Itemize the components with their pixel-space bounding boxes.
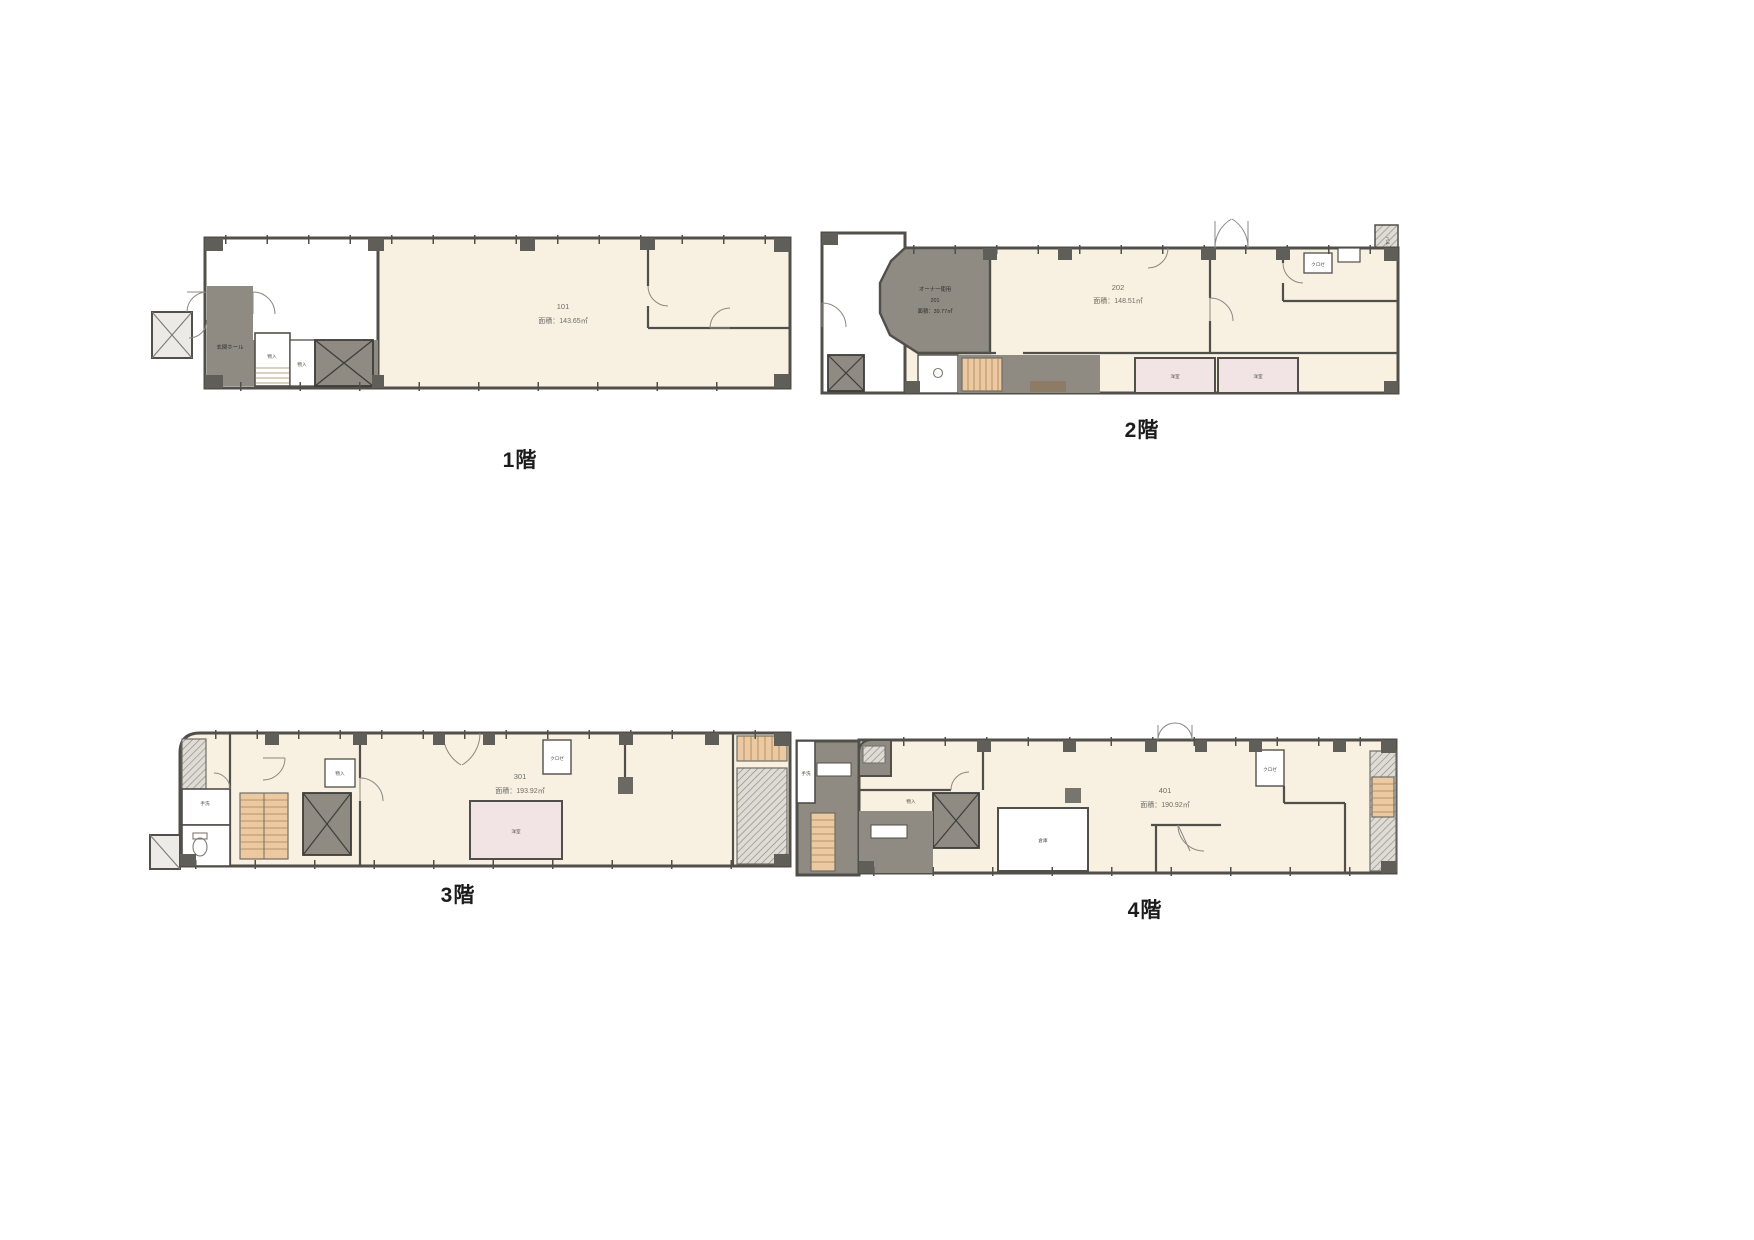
floor-plan-4f: 手洗 物入 <box>793 713 1408 878</box>
right-strip <box>1370 751 1396 871</box>
closet-label: クロゼ <box>550 755 564 762</box>
corner-hatch <box>863 746 885 763</box>
closet: クロゼ <box>543 740 571 774</box>
floor-title-1f: 1階 <box>475 444 565 474</box>
closet-label: クロゼ <box>1311 261 1325 268</box>
elevator-icon <box>933 793 979 848</box>
room-101 <box>378 238 790 388</box>
floor-plan-2f-drawing: バルコニー オーナー使用 201 面積：39.77㎡ <box>818 203 1408 413</box>
right-strip <box>733 733 787 866</box>
room-401-area-label: 面積：190.92㎡ <box>1140 800 1189 809</box>
storage2-label: 物入 <box>297 361 307 368</box>
storage-closet: 物入 <box>325 759 355 787</box>
double-door <box>1158 723 1192 740</box>
stairs <box>255 333 290 386</box>
room-201-area-label: 面積：39.77㎡ <box>917 307 953 315</box>
entrance-hall-label: 玄関ホール <box>217 343 245 351</box>
room-101-area-label: 面積：143.65㎡ <box>538 316 587 325</box>
stairs <box>811 813 835 871</box>
elevator-icon <box>303 793 351 855</box>
pink-room-2-label: 洋室 <box>1253 373 1263 380</box>
storage1-label: 物入 <box>267 353 277 360</box>
pink-room-label: 洋室 <box>511 828 521 835</box>
storeroom: 倉庫 <box>998 808 1088 871</box>
room-401-number-label: 401 <box>1159 786 1172 795</box>
annex-shaft <box>150 835 180 869</box>
pink-room-1-label: 洋室 <box>1170 373 1180 380</box>
room-201-owner: オーナー使用 201 面積：39.77㎡ <box>880 248 990 353</box>
closet: クロゼ <box>1256 750 1284 786</box>
storeroom-label: 倉庫 <box>1038 837 1048 844</box>
room-301-area-label: 面積：193.92㎡ <box>495 786 544 795</box>
washstand-label: 手洗 <box>200 800 210 807</box>
stair-tower: 手洗 <box>797 741 859 875</box>
floor-title-4f: 4階 <box>1100 894 1190 924</box>
closet-label: クロゼ <box>1263 766 1277 773</box>
storage-label: 物入 <box>906 798 916 805</box>
floorplan-sheet: 101 面積：143.65㎡ 玄関ホール 物入 物入 1階 バルコニー <box>0 0 1754 1240</box>
owner-use-label: オーナー使用 <box>919 285 951 293</box>
annex-shaft <box>152 312 192 358</box>
floor-title-2f: 2階 <box>1097 414 1187 444</box>
elevator-icon <box>828 355 864 391</box>
double-door <box>1215 219 1248 248</box>
floor-plan-3f-drawing: 手洗 物入 <box>145 723 805 878</box>
floor-plan-3f: 手洗 物入 <box>145 723 805 878</box>
room-301-number-label: 301 <box>514 772 527 781</box>
storage-label: 物入 <box>335 770 345 777</box>
room-202-area-label: 面積：148.51㎡ <box>1093 296 1142 305</box>
room-201-number-label: 201 <box>931 298 940 304</box>
room-101-number-label: 101 <box>557 302 570 311</box>
floor-plan-1f: 101 面積：143.65㎡ 玄関ホール 物入 物入 <box>150 228 800 398</box>
washroom <box>918 355 958 393</box>
tower-washstand-label: 手洗 <box>801 770 811 777</box>
stairs <box>240 793 288 859</box>
floor-title-3f: 3階 <box>413 879 503 909</box>
floor-plan-4f-drawing: 手洗 物入 <box>793 713 1408 878</box>
floor-plan-1f-drawing: 101 面積：143.65㎡ 玄関ホール 物入 物入 <box>150 228 800 398</box>
balcony-hatch <box>182 739 206 789</box>
pillar <box>1065 788 1081 803</box>
utility-zone <box>958 355 1100 393</box>
floor-plan-2f: バルコニー オーナー使用 201 面積：39.77㎡ <box>818 203 1408 413</box>
elevator-icon <box>315 340 373 386</box>
room-202-number-label: 202 <box>1112 283 1125 292</box>
